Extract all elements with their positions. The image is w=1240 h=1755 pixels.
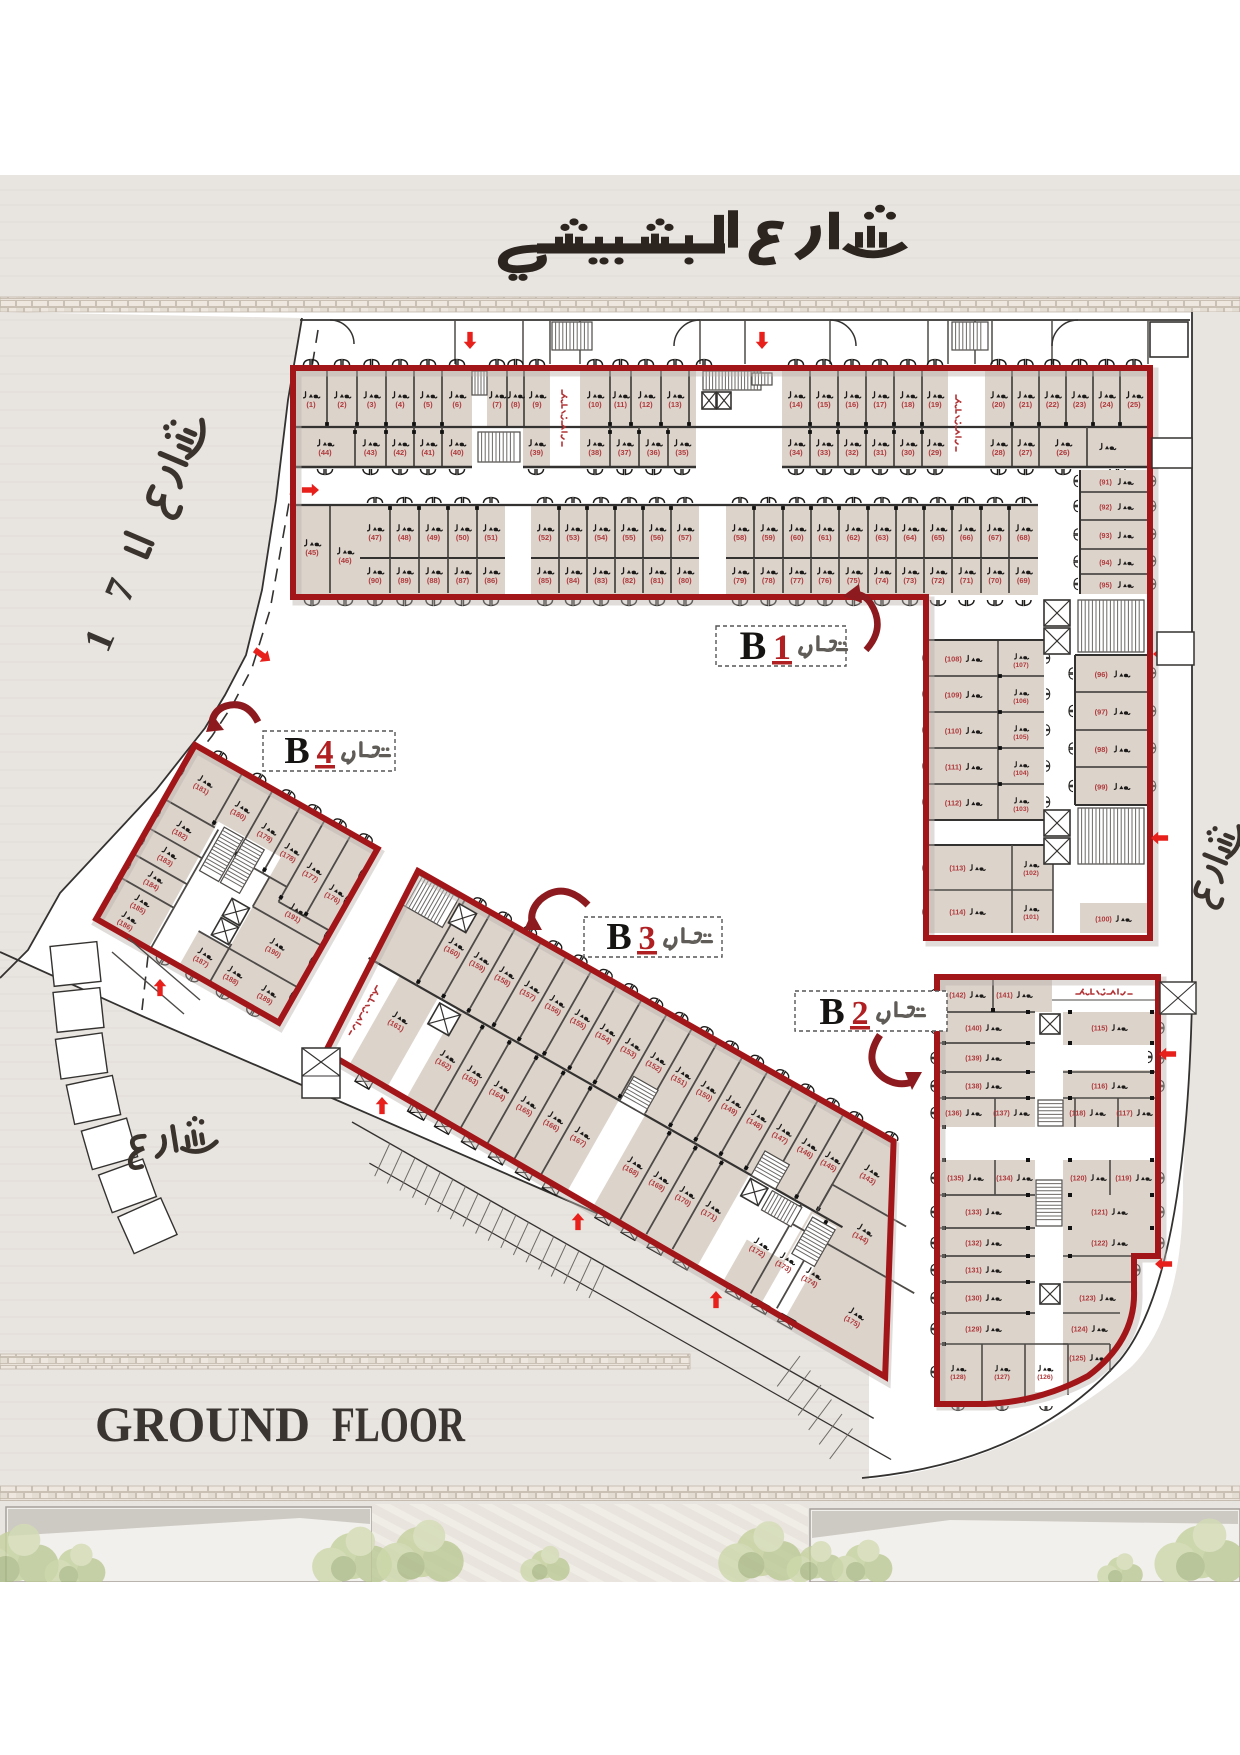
svg-text:(115): (115) xyxy=(1091,1025,1108,1033)
svg-text:(117): (117) xyxy=(1116,1110,1133,1118)
svg-text:(96): (96) xyxy=(1095,670,1109,679)
svg-text:(29): (29) xyxy=(928,448,942,457)
svg-text:B: B xyxy=(284,730,309,772)
svg-text:(98): (98) xyxy=(1095,745,1109,754)
svg-text:(74): (74) xyxy=(875,576,889,585)
svg-text:(140): (140) xyxy=(965,1025,982,1033)
svg-text:(68): (68) xyxy=(1017,533,1031,542)
svg-text:(48): (48) xyxy=(398,533,412,542)
svg-text:(76): (76) xyxy=(818,576,832,585)
svg-text:(126): (126) xyxy=(1037,1374,1053,1381)
svg-text:(66): (66) xyxy=(960,533,974,542)
svg-text:(59): (59) xyxy=(762,533,776,542)
svg-text:(73): (73) xyxy=(903,576,917,585)
svg-text:(102): (102) xyxy=(1023,870,1039,877)
svg-text:(70): (70) xyxy=(988,576,1002,585)
svg-text:(119): (119) xyxy=(1115,1175,1132,1183)
svg-text:(62): (62) xyxy=(847,533,861,542)
svg-text:(10): (10) xyxy=(588,400,602,409)
svg-text:(35): (35) xyxy=(675,448,689,457)
svg-text:(94): (94) xyxy=(1099,559,1112,567)
svg-text:(63): (63) xyxy=(875,533,889,542)
svg-text:(58): (58) xyxy=(733,533,747,542)
svg-text:(91): (91) xyxy=(1099,479,1112,487)
svg-text:B: B xyxy=(740,623,767,668)
svg-text:(52): (52) xyxy=(538,533,552,542)
svg-text:(40): (40) xyxy=(450,448,464,457)
svg-text:(44): (44) xyxy=(318,448,332,457)
svg-text:(108): (108) xyxy=(945,655,963,664)
svg-text:(55): (55) xyxy=(622,533,636,542)
svg-text:(43): (43) xyxy=(364,448,378,457)
svg-text:(22): (22) xyxy=(1046,400,1060,409)
svg-text:(19): (19) xyxy=(928,400,942,409)
svg-text:(69): (69) xyxy=(1017,576,1031,585)
svg-text:(125): (125) xyxy=(1069,1355,1086,1363)
svg-text:(16): (16) xyxy=(845,400,859,409)
svg-text:FLOOR: FLOOR xyxy=(332,1396,466,1452)
svg-text:(112): (112) xyxy=(945,799,962,808)
svg-text:(36): (36) xyxy=(647,448,661,457)
svg-text:(46): (46) xyxy=(338,556,352,565)
svg-text:(21): (21) xyxy=(1019,400,1033,409)
svg-text:(34): (34) xyxy=(789,448,803,457)
svg-text:(105): (105) xyxy=(1013,734,1028,741)
svg-text:(106): (106) xyxy=(1013,698,1028,705)
svg-text:(139): (139) xyxy=(965,1055,982,1063)
svg-text:(41): (41) xyxy=(421,448,435,457)
svg-text:(81): (81) xyxy=(650,576,664,585)
svg-text:(104): (104) xyxy=(1013,770,1028,777)
svg-text:(127): (127) xyxy=(994,1374,1010,1381)
svg-text:(23): (23) xyxy=(1073,400,1087,409)
svg-text:(101): (101) xyxy=(1023,914,1039,921)
svg-text:(61): (61) xyxy=(818,533,832,542)
svg-text:(129): (129) xyxy=(965,1326,982,1334)
svg-text:(84): (84) xyxy=(566,576,580,585)
svg-text:(87): (87) xyxy=(456,576,470,585)
svg-text:(79): (79) xyxy=(733,576,747,585)
svg-text:(12): (12) xyxy=(639,400,653,409)
svg-text:(14): (14) xyxy=(789,400,803,409)
svg-text:(88): (88) xyxy=(427,576,441,585)
svg-text:(2): (2) xyxy=(337,400,347,409)
svg-text:(118): (118) xyxy=(1069,1110,1086,1118)
svg-text:(111): (111) xyxy=(945,763,962,772)
svg-text:(49): (49) xyxy=(427,533,441,542)
svg-text:(86): (86) xyxy=(484,576,498,585)
svg-text:(83): (83) xyxy=(594,576,608,585)
svg-text:(113): (113) xyxy=(949,865,966,873)
svg-text:(121): (121) xyxy=(1091,1209,1108,1217)
svg-text:(26): (26) xyxy=(1056,448,1070,457)
svg-text:(122): (122) xyxy=(1091,1240,1108,1248)
svg-text:(33): (33) xyxy=(817,448,831,457)
svg-text:(6): (6) xyxy=(452,400,462,409)
svg-text:(30): (30) xyxy=(901,448,915,457)
svg-text:(45): (45) xyxy=(305,548,319,557)
svg-text:(120): (120) xyxy=(1070,1175,1087,1183)
svg-text:(137): (137) xyxy=(993,1110,1010,1118)
svg-text:(128): (128) xyxy=(950,1374,966,1381)
svg-text:(89): (89) xyxy=(398,576,412,585)
svg-text:(114): (114) xyxy=(949,909,966,917)
svg-text:(130): (130) xyxy=(965,1295,982,1303)
svg-text:(134): (134) xyxy=(996,1175,1013,1183)
svg-text:(28): (28) xyxy=(992,448,1006,457)
svg-text:(51): (51) xyxy=(484,533,498,542)
svg-text:(123): (123) xyxy=(1079,1295,1096,1303)
svg-text:(77): (77) xyxy=(790,576,804,585)
svg-text:(27): (27) xyxy=(1019,448,1033,457)
svg-text:(7): (7) xyxy=(492,400,502,409)
svg-text:(9): (9) xyxy=(532,400,542,409)
svg-text:(25): (25) xyxy=(1127,400,1141,409)
svg-text:(15): (15) xyxy=(817,400,831,409)
svg-text:(135): (135) xyxy=(947,1175,964,1183)
svg-text:(4): (4) xyxy=(395,400,405,409)
svg-text:(133): (133) xyxy=(965,1209,982,1217)
svg-text:(107): (107) xyxy=(1013,662,1028,669)
svg-text:(20): (20) xyxy=(992,400,1006,409)
svg-text:(110): (110) xyxy=(945,727,962,736)
svg-text:(138): (138) xyxy=(965,1083,982,1091)
svg-text:(95): (95) xyxy=(1099,582,1112,590)
svg-text:(100): (100) xyxy=(1095,916,1112,924)
svg-text:(37): (37) xyxy=(618,448,632,457)
svg-text:(42): (42) xyxy=(393,448,407,457)
svg-text:(18): (18) xyxy=(901,400,915,409)
svg-text:(71): (71) xyxy=(960,576,974,585)
svg-text:(124): (124) xyxy=(1071,1326,1088,1334)
svg-text:(38): (38) xyxy=(588,448,602,457)
svg-text:(99): (99) xyxy=(1095,783,1109,792)
svg-text:(1): (1) xyxy=(306,400,316,409)
svg-text:(60): (60) xyxy=(790,533,804,542)
svg-text:(136): (136) xyxy=(945,1110,962,1118)
svg-text:(78): (78) xyxy=(762,576,776,585)
svg-text:(53): (53) xyxy=(566,533,580,542)
svg-text:(65): (65) xyxy=(931,533,945,542)
svg-text:(13): (13) xyxy=(668,400,682,409)
svg-text:(116): (116) xyxy=(1091,1083,1108,1091)
svg-text:(92): (92) xyxy=(1099,504,1112,512)
svg-text:B: B xyxy=(606,916,631,958)
svg-text:(50): (50) xyxy=(456,533,470,542)
svg-text:(31): (31) xyxy=(873,448,887,457)
svg-text:(82): (82) xyxy=(622,576,636,585)
svg-text:(142): (142) xyxy=(949,992,966,1000)
svg-text:(24): (24) xyxy=(1100,400,1114,409)
svg-text:(57): (57) xyxy=(678,533,692,542)
svg-text:(56): (56) xyxy=(650,533,664,542)
svg-text:(5): (5) xyxy=(423,400,433,409)
svg-text:(85): (85) xyxy=(538,576,552,585)
svg-text:(17): (17) xyxy=(873,400,887,409)
svg-text:GROUND: GROUND xyxy=(95,1396,310,1452)
svg-text:(80): (80) xyxy=(678,576,692,585)
svg-text:(109): (109) xyxy=(945,691,963,700)
svg-text:(3): (3) xyxy=(367,400,377,409)
svg-text:(67): (67) xyxy=(988,533,1002,542)
svg-text:(11): (11) xyxy=(614,400,627,409)
svg-text:(47): (47) xyxy=(368,533,382,542)
svg-text:(132): (132) xyxy=(965,1240,982,1248)
svg-text:(131): (131) xyxy=(965,1267,982,1275)
svg-text:(93): (93) xyxy=(1099,532,1112,540)
svg-text:(103): (103) xyxy=(1013,806,1028,813)
svg-text:(90): (90) xyxy=(368,576,382,585)
svg-text:(32): (32) xyxy=(845,448,859,457)
svg-text:(72): (72) xyxy=(931,576,945,585)
svg-text:B: B xyxy=(819,991,844,1033)
svg-text:(97): (97) xyxy=(1095,708,1109,717)
svg-text:(39): (39) xyxy=(530,448,544,457)
svg-text:(75): (75) xyxy=(847,576,861,585)
svg-text:(64): (64) xyxy=(903,533,917,542)
svg-text:(141): (141) xyxy=(996,992,1013,1000)
svg-text:(54): (54) xyxy=(594,533,608,542)
svg-text:(8): (8) xyxy=(511,400,521,409)
